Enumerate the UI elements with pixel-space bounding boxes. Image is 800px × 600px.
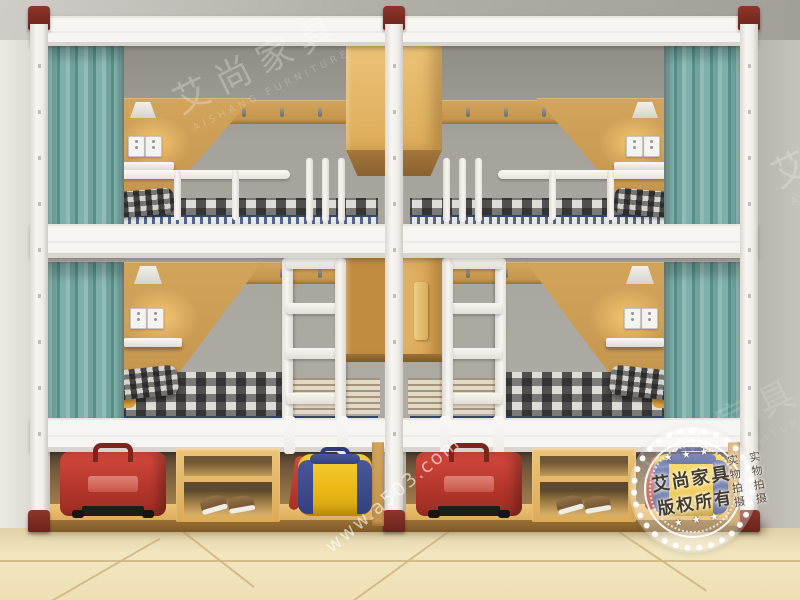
- ladder-rung: [286, 348, 342, 359]
- sneaker: [199, 493, 228, 513]
- duffel-bag: [654, 454, 728, 516]
- storage-divider: [728, 442, 740, 526]
- coat-hook: [466, 108, 470, 117]
- red-suitcase: [416, 452, 522, 516]
- wall-lamp: [130, 102, 156, 118]
- coat-hook: [542, 108, 546, 117]
- end-rail-slat: [306, 158, 313, 222]
- end-rail-slat: [475, 158, 482, 222]
- small-shelf: [122, 162, 174, 170]
- end-rail-slat: [443, 158, 450, 222]
- frame-post-left: [30, 24, 48, 516]
- sneaker: [227, 494, 255, 511]
- power-socket: [641, 308, 658, 329]
- suitcase-wheel: [498, 510, 510, 518]
- end-rail-slat: [459, 158, 466, 222]
- bunk-bed-showroom-photo: 艾尚家具 AISHANG FURNITURE 艾尚家具 AISHANG FURN…: [0, 0, 800, 600]
- power-socket: [643, 136, 660, 157]
- red-suitcase: [60, 452, 166, 516]
- wall-lamp: [626, 266, 654, 284]
- ladder-rung: [446, 348, 502, 359]
- post-foot: [383, 510, 405, 532]
- ladder-rung: [446, 258, 502, 269]
- wall-lamp: [632, 102, 658, 118]
- wall-lamp: [134, 266, 162, 284]
- sneaker: [583, 494, 611, 511]
- power-socket: [130, 308, 147, 329]
- end-rail-slat: [338, 158, 345, 222]
- ladder-rung: [446, 393, 502, 404]
- suitcase-label: [88, 476, 138, 492]
- lower-curtain: [48, 262, 124, 438]
- right-wall: [756, 40, 800, 540]
- suitcase-wheel: [428, 510, 440, 518]
- shoe-shelf-unit: [176, 448, 280, 522]
- power-socket: [624, 308, 641, 329]
- ladder-rung: [286, 258, 342, 269]
- guardrail-bar: [607, 170, 614, 220]
- guardrail-bar: [232, 170, 239, 220]
- small-shelf: [606, 338, 664, 347]
- bag-strap: [666, 454, 716, 464]
- ladder-rung: [286, 393, 342, 404]
- shelf-bottom-opening: [184, 482, 272, 516]
- bag-end-panel: [298, 460, 313, 514]
- cabinet-door-handle: [414, 282, 428, 340]
- upper-curtain: [664, 44, 740, 248]
- suitcase-wheel: [72, 510, 84, 518]
- shelf-bottom-opening: [540, 482, 628, 516]
- power-socket: [147, 308, 164, 329]
- storage-divider: [372, 442, 384, 526]
- frame-post-right: [740, 24, 758, 516]
- upper-curtain: [48, 44, 124, 248]
- lower-curtain: [664, 262, 740, 438]
- coat-hook: [504, 108, 508, 117]
- small-shelf: [124, 338, 182, 347]
- post-foot: [28, 510, 50, 532]
- shelf-top-opening: [184, 456, 272, 476]
- power-socket: [128, 136, 145, 157]
- bag-strap: [310, 454, 360, 464]
- suitcase-base: [82, 506, 144, 516]
- ladder-rung: [446, 303, 502, 314]
- frame-post-center: [385, 24, 403, 516]
- guardrail-bar: [174, 170, 181, 220]
- bag-end-panel: [654, 460, 669, 514]
- coat-hook: [318, 108, 322, 117]
- duffel-bag: [298, 454, 372, 516]
- storage-row-left: [54, 448, 384, 528]
- suitcase-label: [444, 476, 494, 492]
- power-socket: [145, 136, 162, 157]
- guardrail-bar: [549, 170, 556, 220]
- storage-row-right: [410, 448, 740, 528]
- bag-end-panel: [357, 460, 372, 514]
- ladder-rung: [286, 303, 342, 314]
- shelf-top-opening: [540, 456, 628, 476]
- bag-end-panel: [713, 460, 728, 514]
- shoe-shelf-unit: [532, 448, 636, 522]
- coat-hook: [280, 108, 284, 117]
- post-foot: [738, 510, 760, 532]
- suitcase-wheel: [142, 510, 154, 518]
- power-socket: [626, 136, 643, 157]
- coat-hook: [242, 108, 246, 117]
- sneaker: [555, 493, 584, 513]
- end-rail-slat: [322, 158, 329, 222]
- small-shelf: [614, 162, 666, 170]
- suitcase-base: [438, 506, 500, 516]
